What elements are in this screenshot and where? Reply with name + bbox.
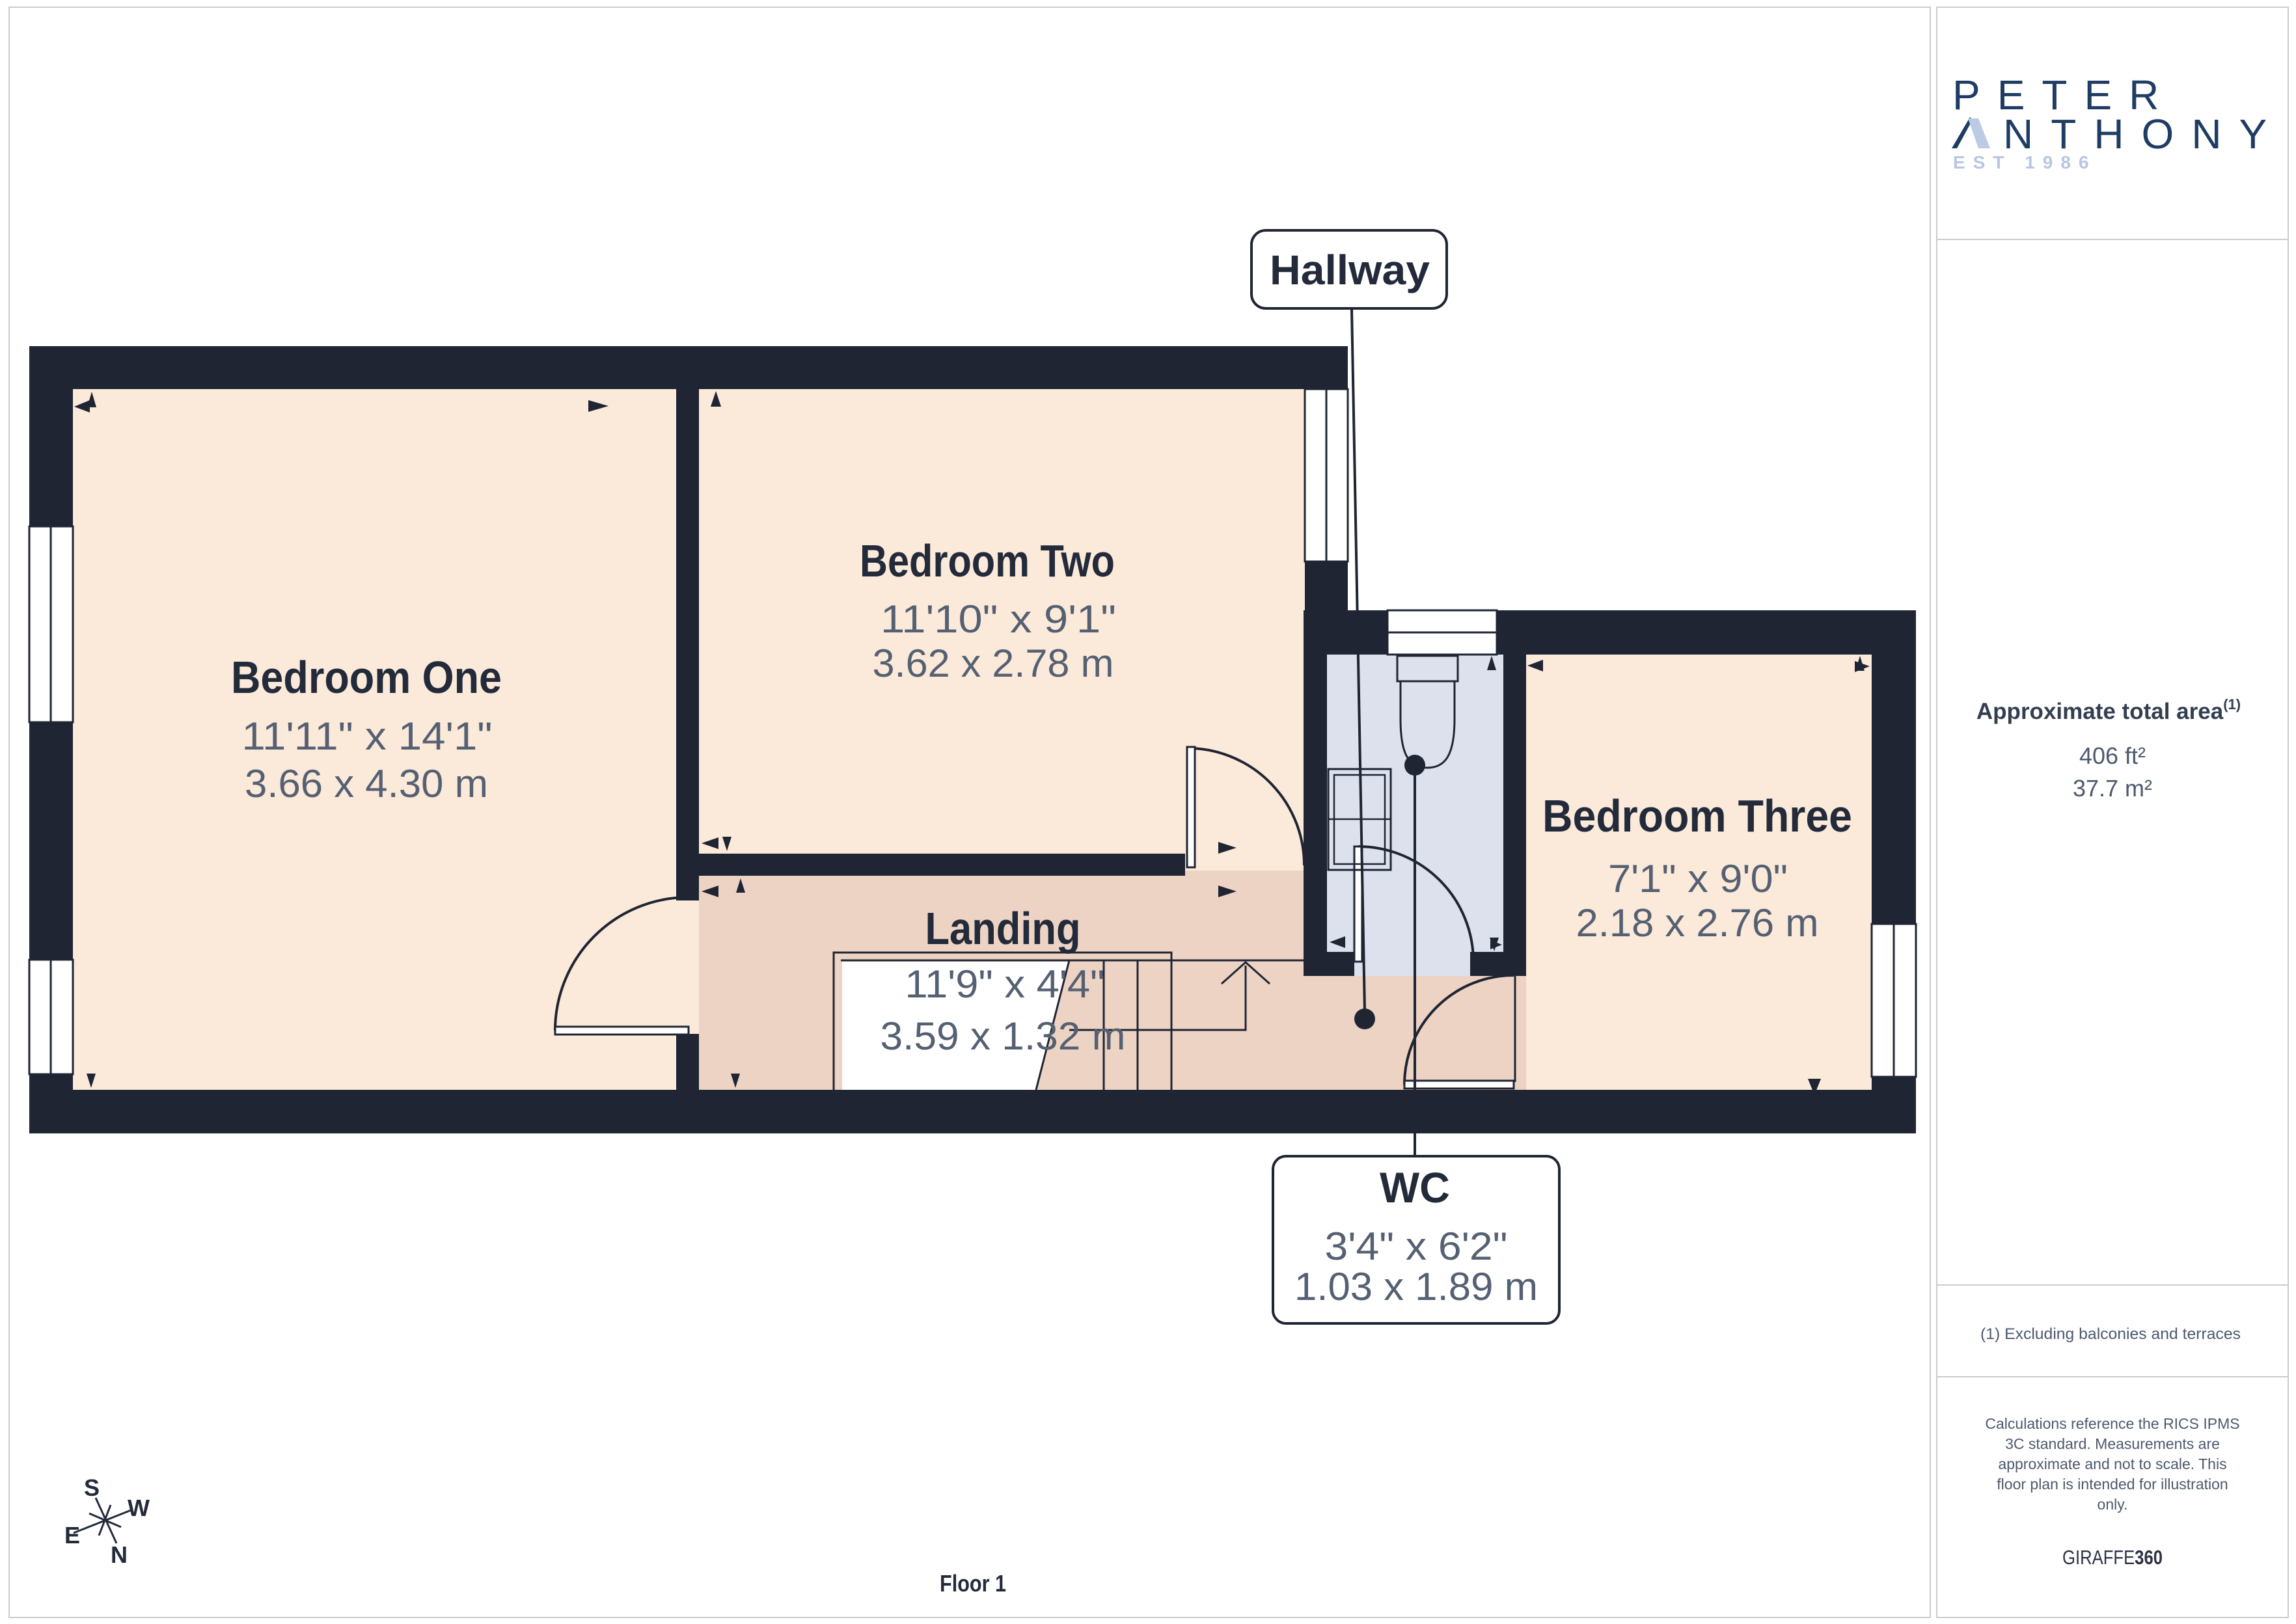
svg-text:floor plan is intended for ill: floor plan is intended for illustration [1997, 1476, 2228, 1493]
svg-text:WC: WC [1380, 1163, 1450, 1211]
svg-text:3'4" x 6'2": 3'4" x 6'2" [1325, 1225, 1508, 1268]
svg-text:NTHONY: NTHONY [2003, 111, 2284, 157]
svg-text:Bedroom Two: Bedroom Two [860, 535, 1115, 586]
svg-text:2.18 x 2.76 m: 2.18 x 2.76 m [1576, 901, 1819, 945]
svg-text:GIRAFFE360: GIRAFFE360 [2062, 1546, 2163, 1569]
svg-text:Landing: Landing [925, 903, 1081, 954]
svg-text:N: N [111, 1541, 128, 1568]
svg-text:Bedroom Three: Bedroom Three [1542, 791, 1852, 841]
svg-text:406 ft²: 406 ft² [2079, 742, 2146, 769]
svg-text:7'1" x 9'0": 7'1" x 9'0" [1608, 857, 1788, 900]
svg-text:11'10" x 9'1": 11'10" x 9'1" [881, 597, 1116, 641]
svg-text:Bedroom One: Bedroom One [231, 652, 502, 703]
svg-text:E: E [64, 1522, 80, 1549]
svg-text:Hallway: Hallway [1270, 247, 1430, 293]
svg-text:only.: only. [2098, 1496, 2128, 1513]
svg-text:3C standard. Measurements are: 3C standard. Measurements are [2005, 1435, 2220, 1452]
svg-text:Approximate total area(1): Approximate total area(1) [1976, 696, 2241, 724]
svg-text:3.59 x 1.32 m: 3.59 x 1.32 m [881, 1014, 1126, 1058]
svg-text:S: S [84, 1474, 100, 1501]
svg-text:Floor 1: Floor 1 [940, 1570, 1006, 1597]
svg-text:3.66 x 4.30 m: 3.66 x 4.30 m [245, 762, 488, 805]
svg-text:W: W [128, 1495, 150, 1521]
svg-text:EST 1986: EST 1986 [1953, 152, 2097, 172]
svg-text:approximate and not to scale.: approximate and not to scale. This [1998, 1455, 2226, 1472]
svg-text:37.7 m²: 37.7 m² [2073, 775, 2152, 802]
svg-text:3.62 x 2.78 m: 3.62 x 2.78 m [873, 642, 1114, 685]
svg-text:Calculations reference the RIC: Calculations reference the RICS IPMS [1985, 1415, 2239, 1432]
svg-text:11'9" x 4'4": 11'9" x 4'4" [905, 962, 1105, 1006]
svg-text:(1) Excluding balconies and te: (1) Excluding balconies and terraces [1980, 1325, 2241, 1343]
svg-text:11'11" x 14'1": 11'11" x 14'1" [242, 714, 493, 758]
svg-text:1.03 x 1.89 m: 1.03 x 1.89 m [1294, 1265, 1538, 1308]
